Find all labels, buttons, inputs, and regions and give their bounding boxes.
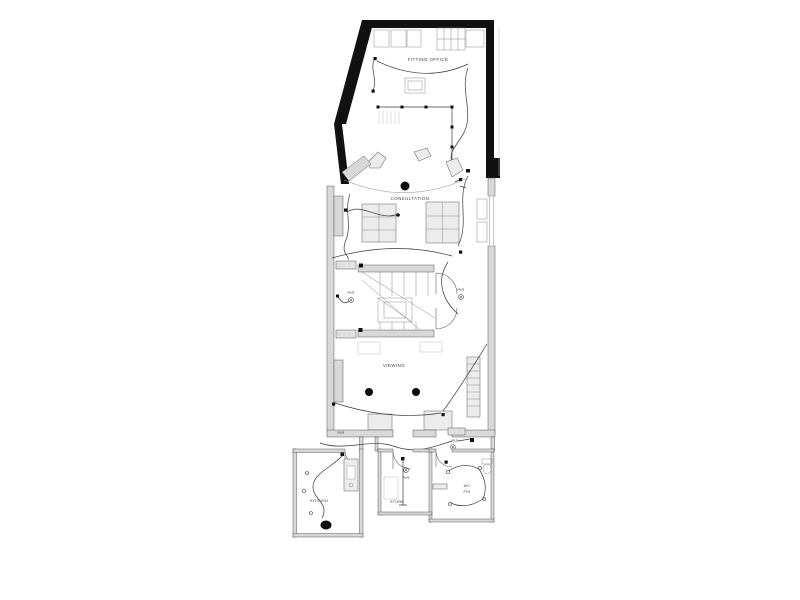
staircase: PIR PIR: [336, 261, 465, 338]
stair-wall-bottom: [358, 330, 434, 337]
cable-run: [344, 194, 350, 260]
wc-wall-bottom: [429, 519, 494, 522]
left-wall: [327, 186, 334, 433]
socket-symbol: [401, 457, 405, 461]
ceiling-light-symbol: [365, 388, 373, 396]
cabinet: [368, 414, 392, 430]
shelf: [384, 477, 398, 499]
basin-fixture: [482, 459, 492, 474]
socket-symbol: [442, 413, 445, 416]
kitchen-wall-left: [293, 449, 297, 537]
switch-symbol: [303, 490, 306, 493]
store-wall-right: [429, 449, 432, 515]
table: [362, 204, 396, 242]
socket-symbol: [466, 169, 470, 173]
display-plinth: [414, 148, 431, 161]
appliance: [344, 459, 358, 491]
display-plinth: [368, 152, 386, 168]
socket-symbol: [459, 178, 462, 181]
pir-label: PIR: [403, 476, 410, 480]
room-label-store: STORE: [390, 500, 404, 504]
cable-run: [451, 499, 483, 506]
kitchen-room: KITCHEN: [293, 449, 363, 537]
socket-symbol: [445, 461, 448, 464]
wc-wall-top: [429, 449, 436, 452]
pir-sensor-corridor-left: PIR: [338, 431, 345, 435]
cable-run: [320, 441, 452, 450]
pir-label: PIR: [452, 439, 459, 443]
socket-symbol: [359, 264, 363, 268]
reference-tag-box: [448, 428, 465, 435]
socket-symbol: [332, 403, 335, 406]
floor-plan-canvas: FITTING OFFICE: [0, 0, 800, 600]
window-detail: [477, 199, 487, 219]
ceiling-light-symbol: [412, 388, 420, 396]
stair-wall-top: [358, 265, 434, 272]
ceiling-light-symbol: [401, 182, 410, 191]
wc-wall-top: [452, 449, 494, 452]
stair-treads: [362, 272, 435, 330]
chimney-breast: [334, 196, 343, 236]
wc-wall-right: [491, 449, 494, 522]
corridor-wall: [413, 430, 436, 437]
cabinet: [424, 411, 452, 430]
window-seat: [420, 342, 442, 352]
solid-wall-angled: [334, 20, 374, 124]
radiator: [433, 484, 447, 489]
cable-run: [377, 61, 468, 73]
viewing-room: VIEWING: [332, 342, 487, 430]
window-seat: [358, 342, 380, 354]
chimney-breast: [334, 360, 343, 402]
kitchen-wall-top: [293, 449, 345, 453]
socket-symbol: [344, 209, 347, 212]
consultation-room: CONSULTATION: [332, 176, 487, 260]
window-detail: [477, 222, 487, 242]
cable-run: [458, 176, 468, 246]
ceiling-light-symbol: [321, 521, 332, 530]
floor-plan-drawing: FITTING OFFICE: [0, 0, 800, 600]
socket-symbol: [459, 251, 462, 254]
notch-wall: [375, 437, 378, 451]
store-wall-top: [378, 449, 393, 452]
socket-symbol: [359, 328, 363, 332]
cable-run: [443, 344, 487, 411]
display-island-inner: [408, 81, 422, 90]
junction-dot: [396, 213, 400, 217]
pir-label: PIR: [458, 288, 465, 292]
store-wall-bottom: [378, 512, 432, 515]
pir-label: PIR: [464, 490, 471, 494]
solid-wall-top: [362, 20, 494, 28]
pir-sensor-left: PIR: [336, 291, 355, 303]
room-label-fitting-office: FITTING OFFICE: [408, 57, 449, 62]
window-right-wall: [488, 196, 496, 246]
reference-tag-box: [336, 261, 356, 269]
cable-run: [313, 456, 342, 518]
switch-symbol: [478, 466, 481, 469]
fitting-office-room: FITTING OFFICE: [334, 20, 500, 184]
room-label-consultation: CONSULTATION: [391, 196, 430, 201]
switch-symbol: [446, 470, 449, 473]
pir-sensor-store: PIR: [403, 468, 410, 480]
pir-label: PIR: [348, 291, 355, 295]
wc-room: WC PIR: [429, 449, 494, 522]
solid-wall-right-foot: [486, 158, 500, 178]
switch-symbol: [306, 472, 309, 475]
door-swing: [436, 308, 457, 329]
display-plinth: [446, 158, 463, 177]
room-label-viewing: VIEWING: [383, 363, 405, 368]
cable-run: [479, 469, 485, 499]
switch-symbol: [310, 512, 313, 515]
socket-symbol: [470, 438, 474, 442]
solid-wall-right: [486, 20, 494, 162]
lighting-track: [377, 106, 454, 164]
socket-symbol: [374, 57, 377, 60]
store-wall-left: [378, 449, 381, 515]
kitchen-wall-bottom: [293, 534, 363, 538]
door-swing: [436, 452, 452, 467]
lobby-corridor: PIR PIR: [320, 428, 495, 451]
table: [426, 202, 459, 243]
pir-label: PIR: [338, 431, 345, 435]
kitchen-wall-right: [360, 449, 364, 537]
switch-symbol: [448, 502, 451, 505]
cable-run: [449, 465, 479, 471]
pir-sensor-right: PIR: [442, 262, 465, 314]
cable-run: [451, 68, 468, 160]
shelving-hatch: [379, 111, 399, 124]
cable-run: [373, 60, 375, 90]
door-swing: [436, 273, 457, 294]
room-label-wc: WC: [464, 484, 471, 488]
cable-run: [442, 262, 458, 314]
reference-tag-box: [336, 330, 356, 338]
store-room: STORE PIR: [378, 449, 432, 515]
socket-symbol: [372, 90, 375, 93]
wall-storage-units: [374, 28, 484, 50]
bay-display-area: [342, 148, 466, 193]
cable-run: [332, 248, 452, 258]
socket-symbol: [341, 453, 345, 457]
